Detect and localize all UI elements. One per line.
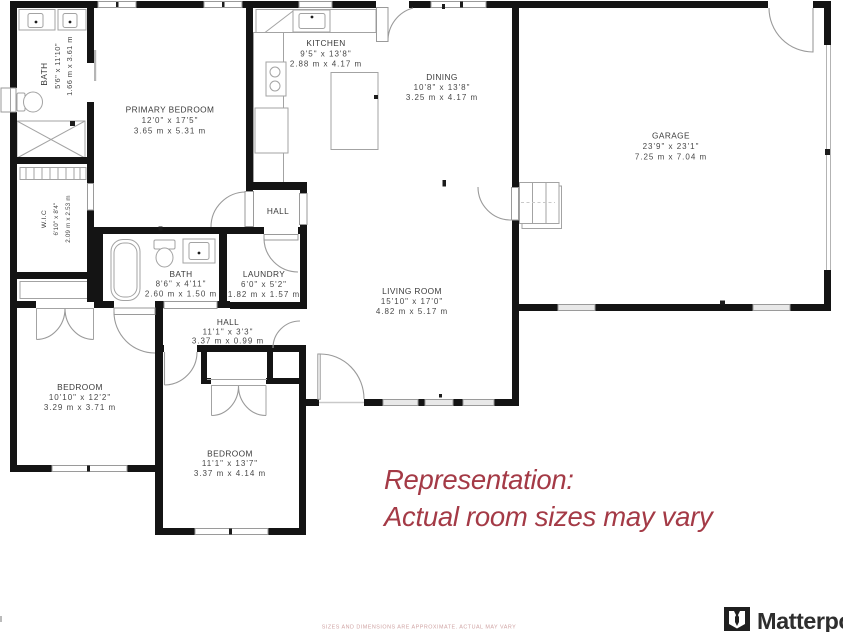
svg-text:3.25 m x 4.17 m: 3.25 m x 4.17 m [406,93,478,102]
svg-text:11'1" x 13'7": 11'1" x 13'7" [202,459,258,468]
svg-text:BATH: BATH [169,269,192,279]
svg-text:10'8" x 13'8": 10'8" x 13'8" [414,83,471,92]
svg-text:2.88 m x 4.17 m: 2.88 m x 4.17 m [290,60,362,69]
svg-text:2.60 m x 1.50 m: 2.60 m x 1.50 m [145,290,217,299]
svg-text:9'5" x 13'8": 9'5" x 13'8" [300,50,351,59]
svg-text:BEDROOM: BEDROOM [57,382,103,392]
svg-text:LAUNDRY: LAUNDRY [243,269,285,279]
svg-text:Representation:: Representation: [384,464,574,495]
svg-text:HALL: HALL [217,317,239,327]
svg-text:KITCHEN: KITCHEN [306,38,345,48]
svg-text:1.66 m x 3.61 m: 1.66 m x 3.61 m [65,36,74,96]
svg-text:Matterport: Matterport [757,608,843,632]
svg-text:GARAGE: GARAGE [652,131,690,141]
svg-text:DINING: DINING [426,72,457,82]
svg-text:10'10" x 12'2": 10'10" x 12'2" [49,393,111,402]
svg-text:8'6" x 4'11": 8'6" x 4'11" [156,280,207,289]
svg-text:PRIMARY BEDROOM: PRIMARY BEDROOM [126,105,215,115]
svg-text:7.25 m x 7.04 m: 7.25 m x 7.04 m [635,153,707,162]
svg-text:BEDROOM: BEDROOM [207,449,253,459]
svg-text:12'0" x 17'5": 12'0" x 17'5" [142,116,199,125]
svg-text:3.29 m x 3.71 m: 3.29 m x 3.71 m [44,403,116,412]
svg-text:HALL: HALL [267,206,289,216]
svg-text:LIVING ROOM: LIVING ROOM [382,286,442,296]
svg-text:15'10" x 17'0": 15'10" x 17'0" [381,297,443,306]
svg-text:3.65 m x 5.31 m: 3.65 m x 5.31 m [134,127,206,136]
svg-text:1.82 m x 1.57 m: 1.82 m x 1.57 m [228,290,300,299]
svg-text:SIZES AND DIMENSIONS ARE APPRO: SIZES AND DIMENSIONS ARE APPROXIMATE. AC… [322,625,516,631]
svg-text:3.37 m x 4.14 m: 3.37 m x 4.14 m [194,469,266,478]
svg-text:5'6" x 11'10": 5'6" x 11'10" [53,43,62,89]
svg-text:2.09 m x 2.53 m: 2.09 m x 2.53 m [65,195,72,242]
svg-text:W.I.C: W.I.C [41,210,48,228]
svg-text:11'1" x 3'3": 11'1" x 3'3" [203,328,254,337]
svg-text:Actual room sizes may vary: Actual room sizes may vary [382,501,715,532]
svg-text:6'10" x 8'4": 6'10" x 8'4" [53,203,60,236]
svg-text:6'0" x 5'2": 6'0" x 5'2" [241,280,287,289]
svg-text:23'9" x 23'1": 23'9" x 23'1" [643,142,700,151]
svg-text:BATH: BATH [39,62,49,85]
svg-text:4.82 m x 5.17 m: 4.82 m x 5.17 m [376,307,448,316]
svg-text:3.37 m x 0.99 m: 3.37 m x 0.99 m [192,337,264,346]
